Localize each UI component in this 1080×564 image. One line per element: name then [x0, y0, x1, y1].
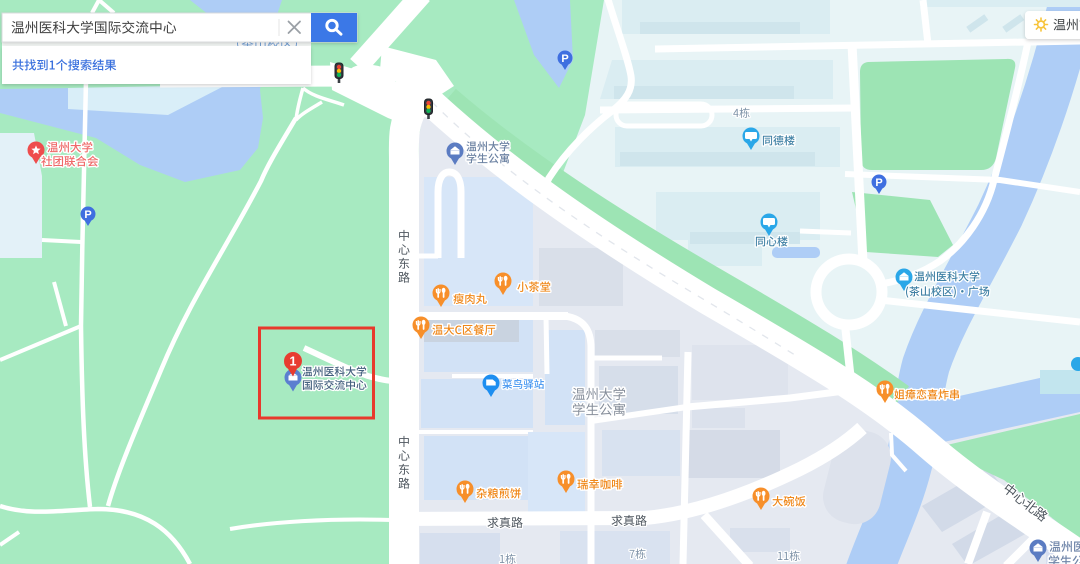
svg-text:P: P	[84, 209, 91, 221]
svg-text:P: P	[561, 53, 568, 65]
svg-text:P: P	[875, 177, 882, 189]
svg-text:1: 1	[290, 355, 297, 369]
